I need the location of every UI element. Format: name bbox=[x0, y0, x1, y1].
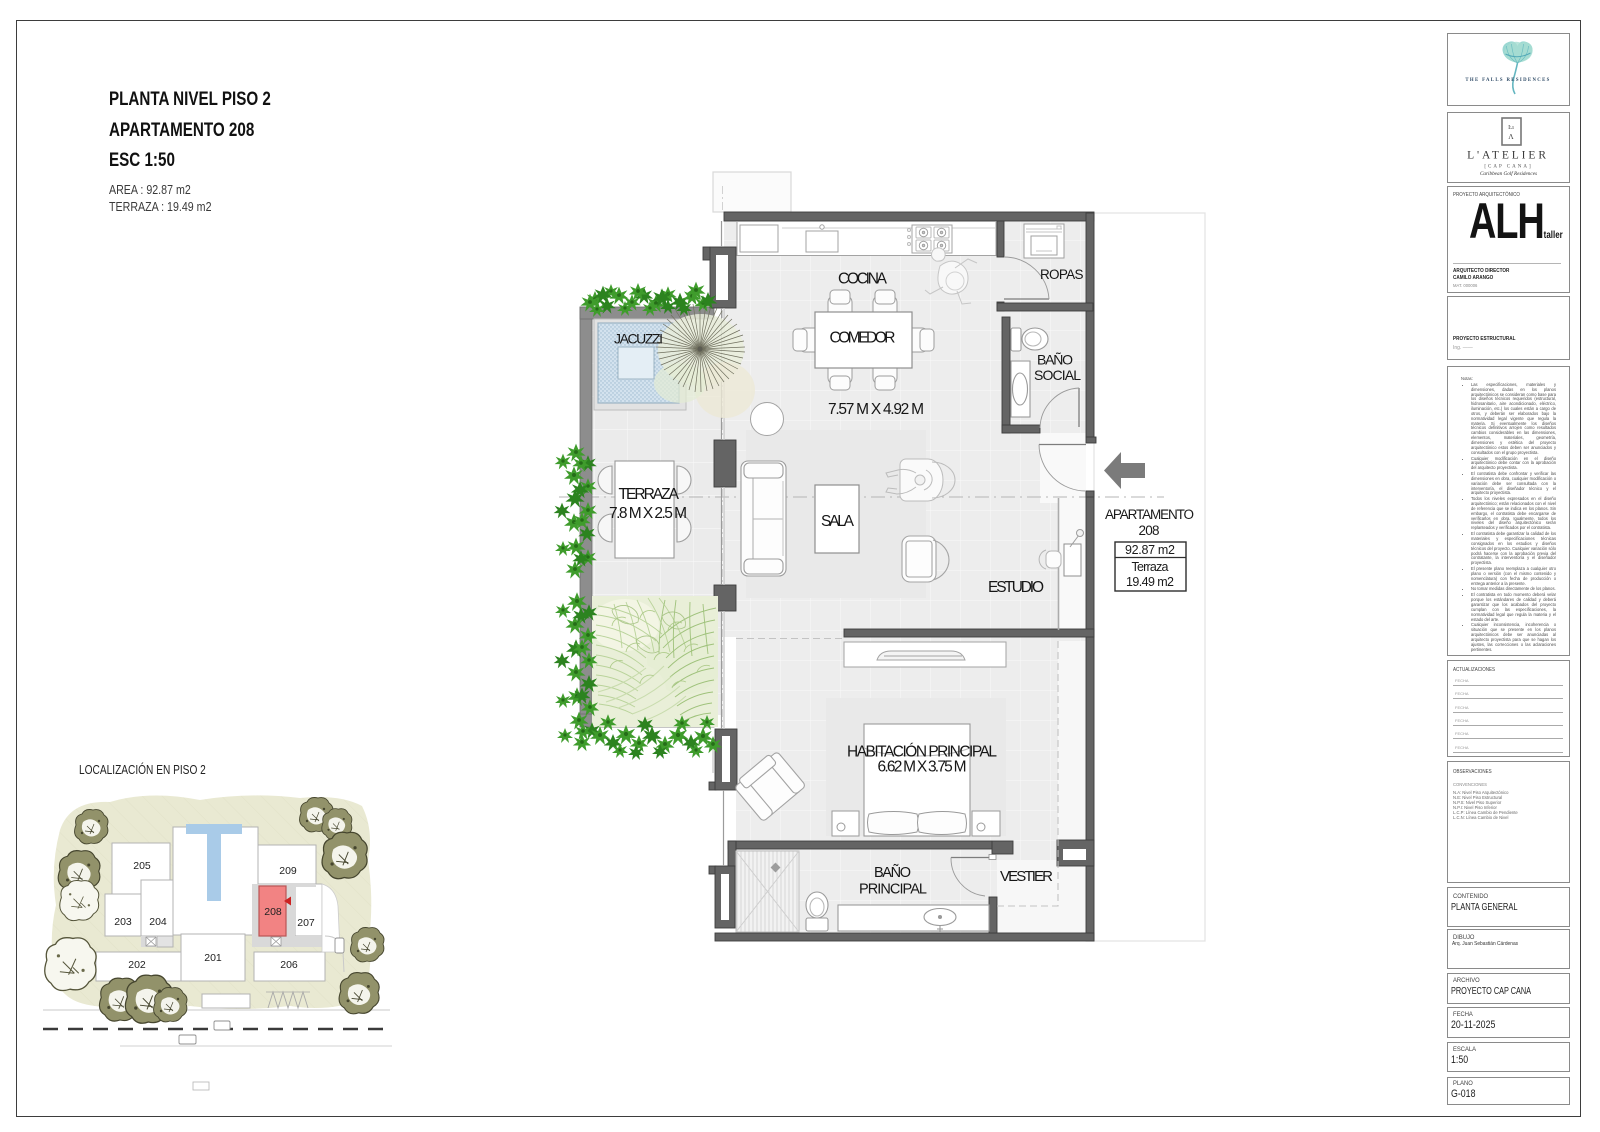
svg-text:208: 208 bbox=[1139, 523, 1160, 538]
svg-text:204: 204 bbox=[149, 916, 167, 928]
svg-text:L'ATELIER: L'ATELIER bbox=[1467, 150, 1549, 162]
svg-text:92.87 m2: 92.87 m2 bbox=[1125, 543, 1175, 557]
svg-text:VESTIER: VESTIER bbox=[1000, 868, 1053, 885]
svg-text:PRINCIPAL: PRINCIPAL bbox=[859, 882, 927, 898]
svg-text:THE FALLS RESIDENCES: THE FALLS RESIDENCES bbox=[1465, 78, 1550, 83]
svg-text:COCINA: COCINA bbox=[838, 271, 888, 288]
svg-text:202: 202 bbox=[128, 959, 146, 971]
svg-text:7.8 M X 2.5 M: 7.8 M X 2.5 M bbox=[609, 505, 687, 522]
svg-text:ROPAS: ROPAS bbox=[1040, 267, 1084, 282]
svg-text:Ŀı: Ŀı bbox=[1508, 124, 1514, 131]
svg-text:Terraza: Terraza bbox=[1132, 560, 1169, 574]
svg-text:[CAP CANA]: [CAP CANA] bbox=[1484, 165, 1532, 170]
svg-text:APARTAMENTO: APARTAMENTO bbox=[1105, 507, 1194, 522]
svg-text:BAÑO: BAÑO bbox=[874, 864, 911, 881]
svg-text:19.49 m2: 19.49 m2 bbox=[1126, 575, 1174, 589]
svg-text:COMEDOR: COMEDOR bbox=[830, 330, 896, 347]
svg-text:201: 201 bbox=[204, 952, 222, 964]
svg-text:206: 206 bbox=[280, 959, 298, 971]
svg-text:209: 209 bbox=[279, 865, 297, 877]
svg-text:SALA: SALA bbox=[821, 513, 855, 530]
svg-text:7.57 M X 4.92 M: 7.57 M X 4.92 M bbox=[828, 401, 924, 418]
svg-text:SOCIAL: SOCIAL bbox=[1034, 367, 1081, 383]
svg-text:Caribbean Golf Residences: Caribbean Golf Residences bbox=[1480, 170, 1537, 177]
svg-text:ESTUDIO: ESTUDIO bbox=[988, 579, 1044, 596]
svg-text:6.62 M X 3.75 M: 6.62 M X 3.75 M bbox=[878, 759, 967, 776]
svg-text:208: 208 bbox=[264, 906, 282, 918]
svg-text:Λ: Λ bbox=[1508, 132, 1514, 141]
svg-text:205: 205 bbox=[133, 860, 151, 872]
svg-text:207: 207 bbox=[297, 917, 315, 929]
svg-text:BAÑO: BAÑO bbox=[1037, 352, 1073, 368]
svg-text:JACUZZI: JACUZZI bbox=[614, 331, 663, 347]
svg-text:TERRAZA: TERRAZA bbox=[619, 486, 680, 503]
svg-text:203: 203 bbox=[114, 916, 132, 928]
